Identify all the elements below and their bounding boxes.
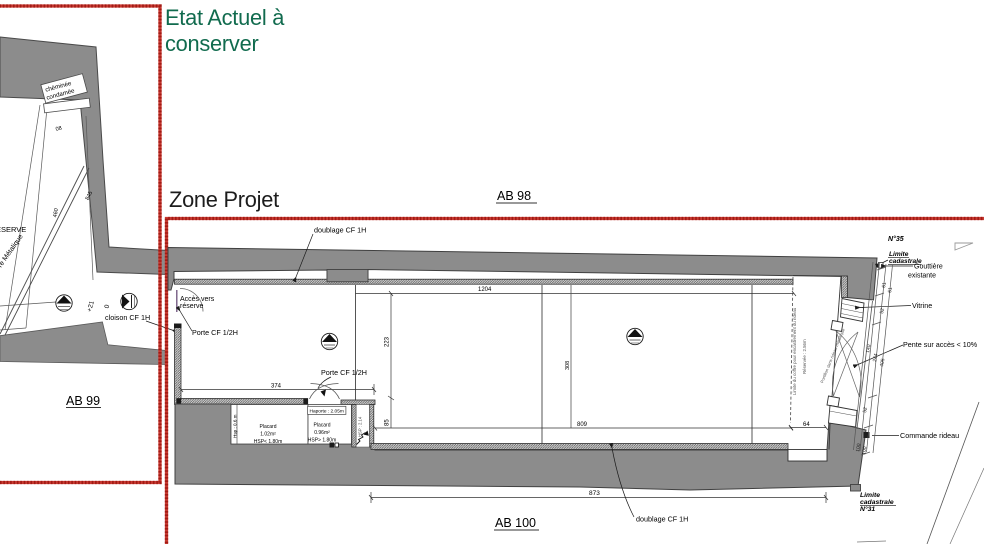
svg-text:conserver: conserver [165,31,258,56]
svg-text:Placard: Placard [314,423,331,429]
svg-text:Haporte : 2.05m: Haporte : 2.05m [309,409,343,415]
svg-text:Limite: Limite [860,492,880,499]
svg-text:Hsp : 0.6 m: Hsp : 0.6 m [233,414,238,438]
svg-text:0.96m²: 0.96m² [314,430,330,436]
svg-text:Etat Actuel à: Etat Actuel à [165,5,285,30]
svg-text:HSP : 2.14: HSP : 2.14 [358,416,363,437]
svg-text:Porte CF 1/2H: Porte CF 1/2H [321,368,367,377]
svg-text:Placard: Placard [260,424,277,430]
svg-text:doublage CF 1H: doublage CF 1H [314,226,366,235]
svg-text:existante: existante [908,273,936,280]
svg-text:Porte CF 1/2H: Porte CF 1/2H [192,328,238,337]
svg-text:809: 809 [577,422,588,428]
svg-text:AB 100: AB 100 [495,516,536,530]
svg-text:374: 374 [271,384,282,390]
svg-text:1204: 1204 [478,287,492,293]
svg-text:Gouttière: Gouttière [914,264,943,271]
svg-text:N°35: N°35 [888,235,904,243]
svg-text:64: 64 [803,422,810,428]
svg-text:873: 873 [589,490,600,497]
svg-text:223: 223 [385,336,391,347]
svg-text:Pente sur accès < 10%: Pente sur accès < 10% [903,340,978,349]
svg-text:Réservée : 2.56m: Réservée : 2.56m [802,339,807,374]
svg-text:ESERVE: ESERVE [0,225,26,234]
svg-text:Accès vers: Accès vers [180,296,215,303]
svg-text:Vitrine: Vitrine [912,301,932,310]
svg-text:HSP< 1.80m: HSP< 1.80m [254,439,283,445]
svg-text:308: 308 [565,361,571,370]
svg-text:85: 85 [385,419,391,426]
svg-text:Limite du coffre pour encastre: Limite du coffre pour encastrement du ri… [792,307,797,395]
svg-text:Commande rideau: Commande rideau [900,431,959,440]
svg-text:réserve: réserve [180,303,203,310]
svg-text:AB 98: AB 98 [497,189,531,203]
svg-text:1.02m²: 1.02m² [260,432,276,438]
svg-text:cloison CF 1H: cloison CF 1H [105,313,150,322]
svg-text:Zone Projet: Zone Projet [169,187,279,212]
svg-text:AB 99: AB 99 [66,394,100,408]
svg-text:cadastrale: cadastrale [860,499,894,506]
svg-text:Limite: Limite [889,251,909,258]
svg-text:doublage CF 1H: doublage CF 1H [636,515,688,524]
svg-text:N°31: N°31 [860,505,875,513]
